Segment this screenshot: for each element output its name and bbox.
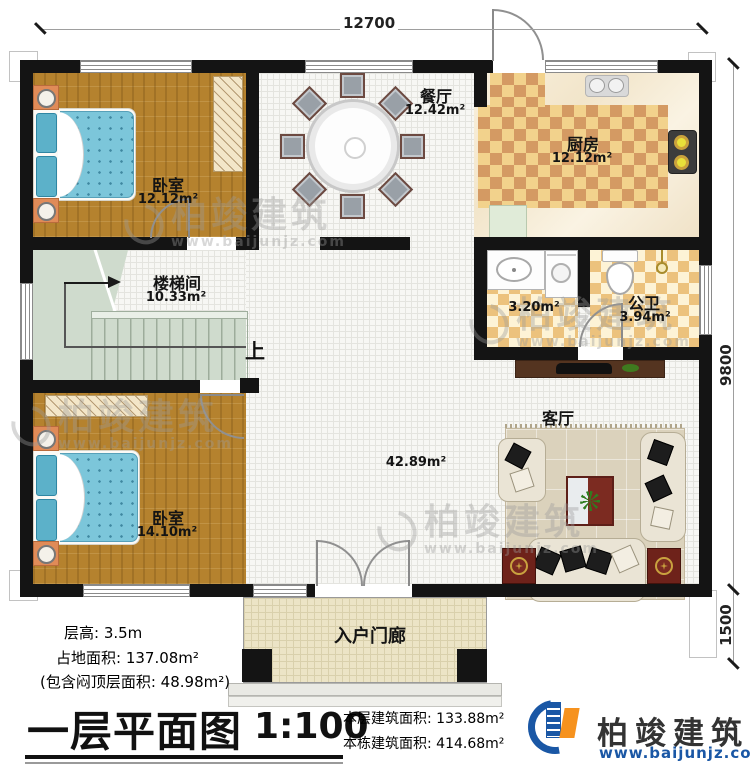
- wall-bottom: [412, 584, 699, 597]
- wall-bedroom2-top: [20, 380, 200, 393]
- bath-sink-drain: [512, 268, 516, 272]
- room-area-living: 42.89m²: [386, 455, 446, 470]
- window: [83, 584, 190, 597]
- dimension-right-value: 9800: [717, 345, 735, 389]
- stair-path-vertical: [64, 283, 66, 348]
- brand-logo-building-blue: [546, 702, 561, 738]
- closet: [213, 76, 243, 172]
- stair-up-label: 上: [245, 335, 265, 364]
- porch-column: [457, 649, 487, 682]
- porch-column: [242, 649, 272, 682]
- tv-decor-plant: [622, 364, 639, 372]
- toilet-tank: [602, 250, 638, 262]
- stair-arrow-head: [108, 276, 121, 288]
- door-leaf: [492, 9, 494, 61]
- wall-kitchen-left: [474, 60, 487, 107]
- stove-burner: [674, 155, 689, 170]
- wall-hall-divider: [320, 237, 410, 250]
- wall-bath-divider: [578, 250, 590, 307]
- stair-arrow-line: [64, 282, 110, 284]
- nightstand: [33, 541, 59, 566]
- porch-step-1: [228, 683, 502, 696]
- side-table-inlay: [510, 557, 528, 575]
- room-area-bedroom2: 14.10m²: [137, 525, 197, 540]
- stair-handrail: [91, 311, 248, 319]
- stair-treads: [91, 319, 248, 380]
- brand-website: www.baijunjz.com: [599, 744, 750, 762]
- ceiling-light: [656, 262, 668, 274]
- dining-chair: [340, 73, 365, 98]
- nightstand: [33, 85, 59, 110]
- ceiling-light-cord: [661, 250, 663, 263]
- room-area-stairwell: 10.33m²: [146, 290, 206, 305]
- stair-path-horizontal: [64, 346, 246, 348]
- door-opening-bath: [578, 347, 623, 360]
- window: [699, 265, 712, 335]
- dining-chair: [340, 194, 365, 219]
- door-opening-bedroom1: [187, 237, 236, 250]
- room-area-bath: 3.94m²: [619, 310, 670, 325]
- door-leaf: [316, 540, 318, 586]
- nightstand: [33, 198, 59, 223]
- title-underline-thick: [25, 755, 343, 759]
- window: [80, 60, 192, 73]
- window: [20, 283, 33, 360]
- wall-kitchen-bottom: [474, 237, 699, 250]
- room-area-kitchen: 12.12m²: [552, 151, 612, 166]
- room-area-laundry: 3.20m²: [508, 300, 559, 315]
- room-area-dining: 12.42m²: [405, 103, 465, 118]
- table-plant: [580, 491, 600, 511]
- window: [545, 60, 658, 73]
- bed-pillow: [36, 499, 57, 541]
- window: [253, 584, 307, 597]
- wall-bath-bottom: [623, 347, 712, 360]
- kitchen-sink-bowl: [589, 78, 605, 93]
- dimension-witness-box: [689, 590, 717, 658]
- side-table-inlay: [655, 557, 673, 575]
- tv: [556, 363, 612, 374]
- dimension-top-value: 12700: [340, 14, 398, 32]
- door-opening-back: [493, 60, 545, 73]
- wall-bedroom1-bottom: [33, 237, 187, 250]
- room-area-bedroom1: 12.12m²: [138, 192, 198, 207]
- bed-pillow: [36, 113, 57, 153]
- wall-bath-bottom: [474, 347, 578, 360]
- door-opening-bedroom2: [200, 380, 240, 393]
- plan-title: 一层平面图: [27, 698, 242, 759]
- wall-bedroom1-right: [246, 60, 259, 250]
- room-label-living: 客厅: [542, 405, 574, 429]
- attic-area-note: (包含闷顶层面积: 48.98m²): [40, 671, 230, 692]
- window: [305, 60, 413, 73]
- dining-table-center: [344, 137, 366, 159]
- sofa-cushion: [650, 506, 674, 530]
- dining-chair: [280, 134, 305, 159]
- door-leaf: [408, 540, 410, 586]
- wall-bottom: [307, 584, 315, 597]
- rug-fringe: [505, 424, 685, 428]
- wall-bedroom1-bottom: [236, 237, 259, 250]
- nightstand: [33, 426, 59, 451]
- closet: [45, 395, 148, 417]
- floor-plan: 柏竣建筑 www.baijunjz.com 柏竣建筑 www.baijunjz.…: [0, 0, 750, 776]
- washing-machine-drum: [551, 263, 571, 283]
- door-leaf: [200, 394, 244, 396]
- floor-height-note: 层高: 3.5m: [64, 622, 142, 643]
- floor-area-note: 本层建筑面积: 133.88m²: [343, 708, 504, 728]
- bed-pillow: [36, 156, 57, 197]
- title-underline-thin: [25, 762, 343, 764]
- dimension-porch-value: 1500: [717, 605, 735, 649]
- dimension-line-right: [733, 64, 734, 590]
- wall-bottom: [190, 584, 253, 597]
- wall-bath-left: [474, 250, 487, 360]
- stove-burner: [674, 135, 689, 150]
- land-area-note: 占地面积: 137.08m²: [56, 647, 199, 668]
- door-arc-back: [493, 9, 544, 60]
- wall-bottom: [20, 584, 83, 597]
- kitchen-sink-bowl: [608, 78, 624, 93]
- washing-machine-panel: [547, 254, 576, 256]
- wall-bedroom2-top: [240, 378, 259, 393]
- kitchen-entry-floor: [490, 73, 545, 107]
- bed-pillow: [36, 455, 57, 496]
- dining-chair: [400, 134, 425, 159]
- total-area-note: 本栋建筑面积: 414.68m²: [343, 733, 504, 753]
- room-label-porch: 入户门廊: [334, 622, 406, 648]
